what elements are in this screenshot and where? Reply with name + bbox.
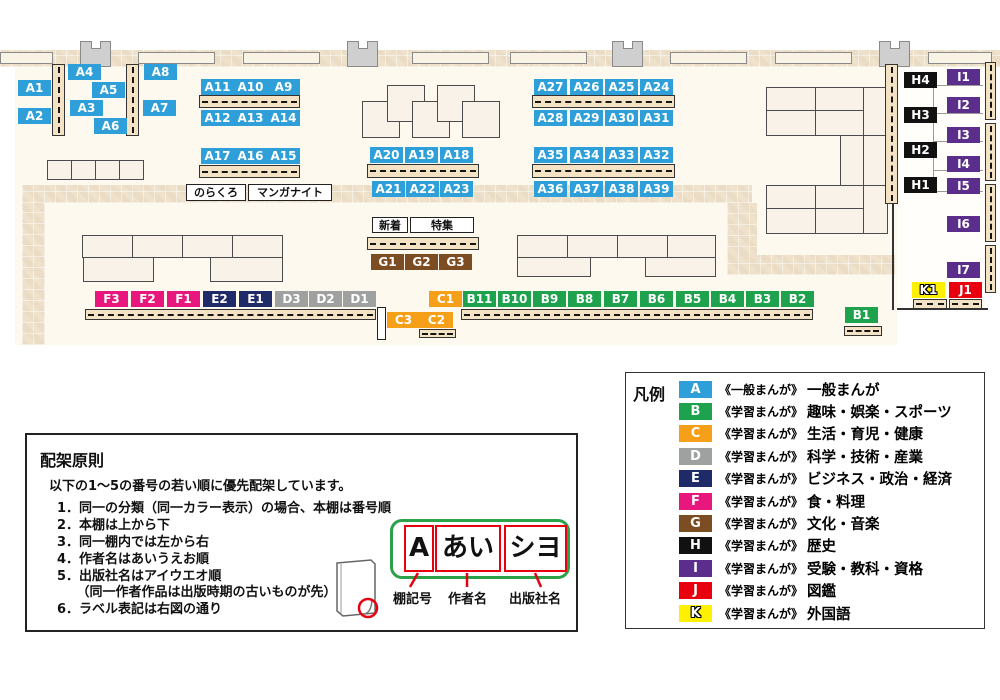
legend-row: F 《学習まんが》 食・料理 — [679, 490, 980, 512]
legend-chip-j: J — [679, 582, 712, 599]
legend-row: I 《学習まんが》 受験・教科・資格 — [679, 557, 980, 579]
shelf-label-h3: H3 — [904, 107, 937, 123]
wall-shelf — [412, 52, 489, 64]
legend-chip-c: C — [679, 425, 712, 442]
legend-tag: 《学習まんが》 — [719, 470, 803, 487]
shelf-block — [182, 235, 233, 258]
shelf-label-a30: A30 — [605, 110, 638, 126]
wall-shelf — [775, 52, 852, 64]
shelf-label-a14: A14 — [267, 110, 300, 126]
shelf-block — [232, 235, 283, 258]
shelf-label-b7: B7 — [604, 291, 637, 307]
shelf-block — [617, 235, 668, 258]
legend-row: G 《学習まんが》 文化・音楽 — [679, 512, 980, 534]
shelf-label-d3: D3 — [275, 291, 308, 307]
shelf-block — [815, 208, 864, 234]
shelf-label-d1: D1 — [343, 291, 376, 307]
wall-piece — [377, 307, 386, 340]
shelf-label-a6: A6 — [94, 118, 127, 134]
diagram-label-author: 作者名 — [448, 588, 487, 607]
legend-row: E 《学習まんが》 ビジネス・政治・経済 — [679, 468, 980, 490]
shelf-label-i2: I2 — [947, 97, 980, 113]
shelf-label-a3: A3 — [70, 100, 103, 116]
note-manganight: マンガナイト — [248, 184, 332, 201]
wall-shelf — [670, 52, 747, 64]
shelf-label-a22: A22 — [406, 181, 439, 197]
shelf-label-a17: A17 — [201, 148, 234, 164]
shelf-label-g1: G1 — [371, 254, 404, 270]
shelf-label-a35: A35 — [534, 147, 567, 163]
shelf-label-a33: A33 — [605, 147, 638, 163]
shelf-label-a23: A23 — [440, 181, 473, 197]
shelf-block — [132, 235, 183, 258]
legend-tag: 《一般まんが》 — [719, 381, 803, 398]
shelf-block — [766, 87, 816, 111]
legend-chip-i: I — [679, 560, 712, 577]
shelf-label-a31: A31 — [640, 110, 673, 126]
shelf-label-a26: A26 — [570, 79, 603, 95]
shelf-label-b10: B10 — [498, 291, 531, 307]
legend-tag: 《学習まんが》 — [719, 448, 803, 465]
shelf-label-c1: C1 — [429, 291, 462, 307]
shelf-label-a1: A1 — [18, 80, 51, 96]
diagram-author-box: あい — [435, 525, 501, 572]
legend-chip-d: D — [679, 448, 712, 465]
shelf-block — [517, 257, 591, 277]
shelf-label-b8: B8 — [568, 291, 601, 307]
legend-chip-b: B — [679, 403, 712, 420]
legend-chip-a: A — [679, 381, 712, 398]
legend-chip-e: E — [679, 470, 712, 487]
rack-strip — [419, 329, 456, 338]
diagram-shelf-code-box: A — [404, 525, 434, 572]
diagram-label-publisher: 出版社名 — [509, 588, 561, 607]
legend-title: 凡例 — [633, 381, 665, 405]
right-branch-walkway — [727, 203, 757, 258]
legend-tag: 《学習まんが》 — [719, 582, 803, 599]
legend-chip-h: H — [679, 537, 712, 554]
shelf-block — [815, 185, 864, 209]
shelf-label-h2: H2 — [904, 142, 937, 158]
legend-tag: 《学習まんが》 — [719, 493, 803, 510]
shelf-label-a18: A18 — [440, 147, 473, 163]
legend-tag: 《学習まんが》 — [719, 403, 803, 420]
rack-strip — [985, 123, 996, 181]
shelf-label-a28: A28 — [534, 110, 567, 126]
note-shinchaku: 新着 — [372, 217, 408, 233]
shelf-label-a15: A15 — [267, 148, 300, 164]
shelf-label-a29: A29 — [570, 110, 603, 126]
shelf-label-a19: A19 — [405, 147, 438, 163]
rack-strip — [126, 64, 139, 136]
legend-row: B 《学習まんが》 趣味・娯楽・スポーツ — [679, 400, 980, 422]
shelf-label-a36: A36 — [534, 181, 567, 197]
shelf-block — [71, 160, 96, 180]
legend-row: C 《学習まんが》 生活・育児・健康 — [679, 423, 980, 445]
legend-tag: 《学習まんが》 — [719, 560, 803, 577]
shelf-block — [766, 110, 816, 136]
legend-row: H 《学習まんが》 歴史 — [679, 535, 980, 557]
wall-shelf — [928, 52, 992, 64]
pillar — [347, 41, 378, 67]
wall-shelf — [138, 52, 215, 64]
rack-strip — [532, 164, 675, 178]
legend-category: 文化・音楽 — [807, 513, 880, 534]
legend-category: 外国語 — [807, 603, 851, 624]
shelf-block — [210, 257, 283, 282]
legend-row: A 《一般まんが》 一般まんが — [679, 378, 980, 400]
rack-strip — [367, 164, 479, 178]
shelf-label-b11: B11 — [463, 291, 496, 307]
shelf-label-a25: A25 — [605, 79, 638, 95]
shelf-block — [766, 185, 816, 209]
rack-strip — [985, 245, 996, 293]
shelf-label-a27: A27 — [534, 79, 567, 95]
legend-category: 食・料理 — [807, 491, 865, 512]
shelf-block — [517, 235, 568, 258]
shelf-label-i6: I6 — [947, 216, 980, 232]
shelf-label-a13: A13 — [234, 110, 267, 126]
wall-shelf — [243, 52, 320, 64]
shelf-block — [815, 110, 864, 136]
shelf-label-h4: H4 — [904, 72, 937, 88]
shelf-block — [83, 257, 154, 282]
shelf-label-h1: H1 — [904, 177, 937, 193]
legend-tag: 《学習まんが》 — [719, 537, 803, 554]
shelf-label-i7: I7 — [947, 262, 980, 278]
legend-chip-g: G — [679, 515, 712, 532]
legend-category: 科学・技術・産業 — [807, 446, 923, 467]
shelf-label-a21: A21 — [372, 181, 405, 197]
shelf-label-a39: A39 — [640, 181, 673, 197]
shelf-label-b1: B1 — [845, 307, 878, 323]
rack-strip — [199, 165, 300, 178]
shelf-label-c2: C2 — [420, 312, 453, 328]
shelf-label-a24: A24 — [640, 79, 673, 95]
shelf-label-g2: G2 — [405, 254, 438, 270]
shelf-label-b3: B3 — [746, 291, 779, 307]
rack-strip — [532, 95, 675, 108]
principles-panel: 配架原則 以下の1～5の番号の若い順に優先配架しています。 1．同一の分類（同一… — [25, 433, 578, 632]
shelf-label-a34: A34 — [570, 147, 603, 163]
shelf-label-c3: C3 — [387, 312, 420, 328]
shelf-block — [840, 135, 864, 186]
shelf-label-a32: A32 — [640, 147, 673, 163]
shelf-label-b2: B2 — [781, 291, 814, 307]
shelf-block — [47, 160, 72, 180]
rack-strip — [199, 95, 300, 108]
shelf-block — [667, 235, 716, 258]
rack-strip — [367, 237, 479, 250]
shelf-block — [567, 235, 618, 258]
legend-category: 図鑑 — [807, 580, 836, 601]
wall-line — [892, 204, 894, 310]
shelf-label-a38: A38 — [605, 181, 638, 197]
bottom-right-walkway — [727, 255, 895, 275]
principles-title: 配架原則 — [40, 447, 104, 471]
shelf-label-k1: K1 — [912, 282, 945, 298]
diagram-publisher-box: シヨ — [504, 525, 567, 572]
shelf-label-a2: A2 — [18, 108, 51, 124]
shelf-label-a5: A5 — [92, 82, 125, 98]
shelf-label-f2: F2 — [131, 291, 164, 307]
diagram-label-shelf: 棚記号 — [393, 588, 432, 607]
legend-tag: 《学習まんが》 — [719, 605, 803, 622]
wall-shelf — [0, 52, 53, 64]
shelf-label-f3: F3 — [95, 291, 128, 307]
bay-line — [933, 113, 983, 114]
shelf-block — [815, 87, 864, 111]
shelf-label-i4: I4 — [947, 156, 980, 172]
principles-intro: 以下の1～5の番号の若い順に優先配架しています。 — [49, 475, 351, 494]
legend-chip-f: F — [679, 493, 712, 510]
legend-rows: A 《一般まんが》 一般まんが B 《学習まんが》 趣味・娯楽・スポーツ C 《… — [679, 378, 980, 624]
legend-category: 受験・教科・資格 — [807, 558, 923, 579]
rack-strip — [85, 309, 376, 320]
shelf-label-a10: A10 — [234, 79, 267, 95]
shelf-label-d2: D2 — [309, 291, 342, 307]
library-floor-map: A1 A2 A4 A5 A3 A6 A8 A7 A11 A10 A9 A12 A… — [0, 0, 1000, 700]
shelf-label-b5: B5 — [676, 291, 709, 307]
principles-item: 6．ラベル表記は右図の通り — [57, 598, 222, 617]
shelf-label-a16: A16 — [234, 148, 267, 164]
shelf-label-i5: I5 — [947, 178, 980, 194]
shelf-label-a7: A7 — [143, 100, 176, 116]
shelf-block — [82, 235, 133, 258]
shelf-block — [119, 160, 144, 180]
legend-panel: 凡例 A 《一般まんが》 一般まんが B 《学習まんが》 趣味・娯楽・スポーツ … — [625, 372, 985, 629]
shelf-label-b9: B9 — [533, 291, 566, 307]
shelf-label-a20: A20 — [370, 147, 403, 163]
shelf-block — [95, 160, 120, 180]
note-norakuro: のらくろ — [186, 184, 246, 201]
pillar — [612, 41, 643, 67]
rack-strip — [885, 64, 898, 204]
bay-line — [933, 85, 983, 86]
legend-chip-k: K — [679, 605, 712, 622]
shelf-label-g3: G3 — [439, 254, 472, 270]
legend-category: ビジネス・政治・経済 — [807, 468, 952, 489]
shelf-block — [645, 257, 716, 277]
shelf-label-e2: E2 — [203, 291, 236, 307]
shelf-label-i3: I3 — [947, 127, 980, 143]
shelf-label-f1: F1 — [167, 291, 200, 307]
legend-tag: 《学習まんが》 — [719, 425, 803, 442]
shelf-label-a37: A37 — [570, 181, 603, 197]
rack-strip — [985, 184, 996, 242]
shelf-label-b6: B6 — [640, 291, 673, 307]
left-walkway — [22, 203, 45, 345]
rack-strip — [52, 64, 65, 136]
rack-strip — [985, 62, 996, 120]
rack-strip — [844, 326, 882, 336]
shelf-label-a12: A12 — [201, 110, 234, 126]
shelf-label-a4: A4 — [68, 64, 101, 80]
legend-category: 趣味・娯楽・スポーツ — [807, 401, 952, 422]
legend-row: J 《学習まんが》 図鑑 — [679, 580, 980, 602]
wall-shelf — [510, 52, 587, 64]
rack-strip — [461, 309, 813, 320]
legend-category: 生活・育児・健康 — [807, 423, 923, 444]
legend-category: 一般まんが — [807, 379, 880, 400]
book-icon — [337, 560, 377, 617]
shelf-label-e1: E1 — [239, 291, 272, 307]
shelf-label-a11: A11 — [201, 79, 234, 95]
bay-line — [933, 78, 934, 192]
wall-line — [897, 308, 988, 310]
shelf-label-j1: J1 — [949, 282, 982, 298]
display-table — [462, 101, 500, 138]
shelf-block — [766, 208, 816, 234]
legend-row: K 《学習まんが》 外国語 — [679, 602, 980, 624]
legend-tag: 《学習まんが》 — [719, 515, 803, 532]
shelf-label-a8: A8 — [144, 64, 177, 80]
legend-category: 歴史 — [807, 535, 836, 556]
shelf-label-b4: B4 — [711, 291, 744, 307]
note-tokushu: 特集 — [410, 217, 474, 233]
legend-row: D 《学習まんが》 科学・技術・産業 — [679, 445, 980, 467]
shelf-label-a9: A9 — [267, 79, 300, 95]
shelf-label-i1: I1 — [947, 69, 980, 85]
